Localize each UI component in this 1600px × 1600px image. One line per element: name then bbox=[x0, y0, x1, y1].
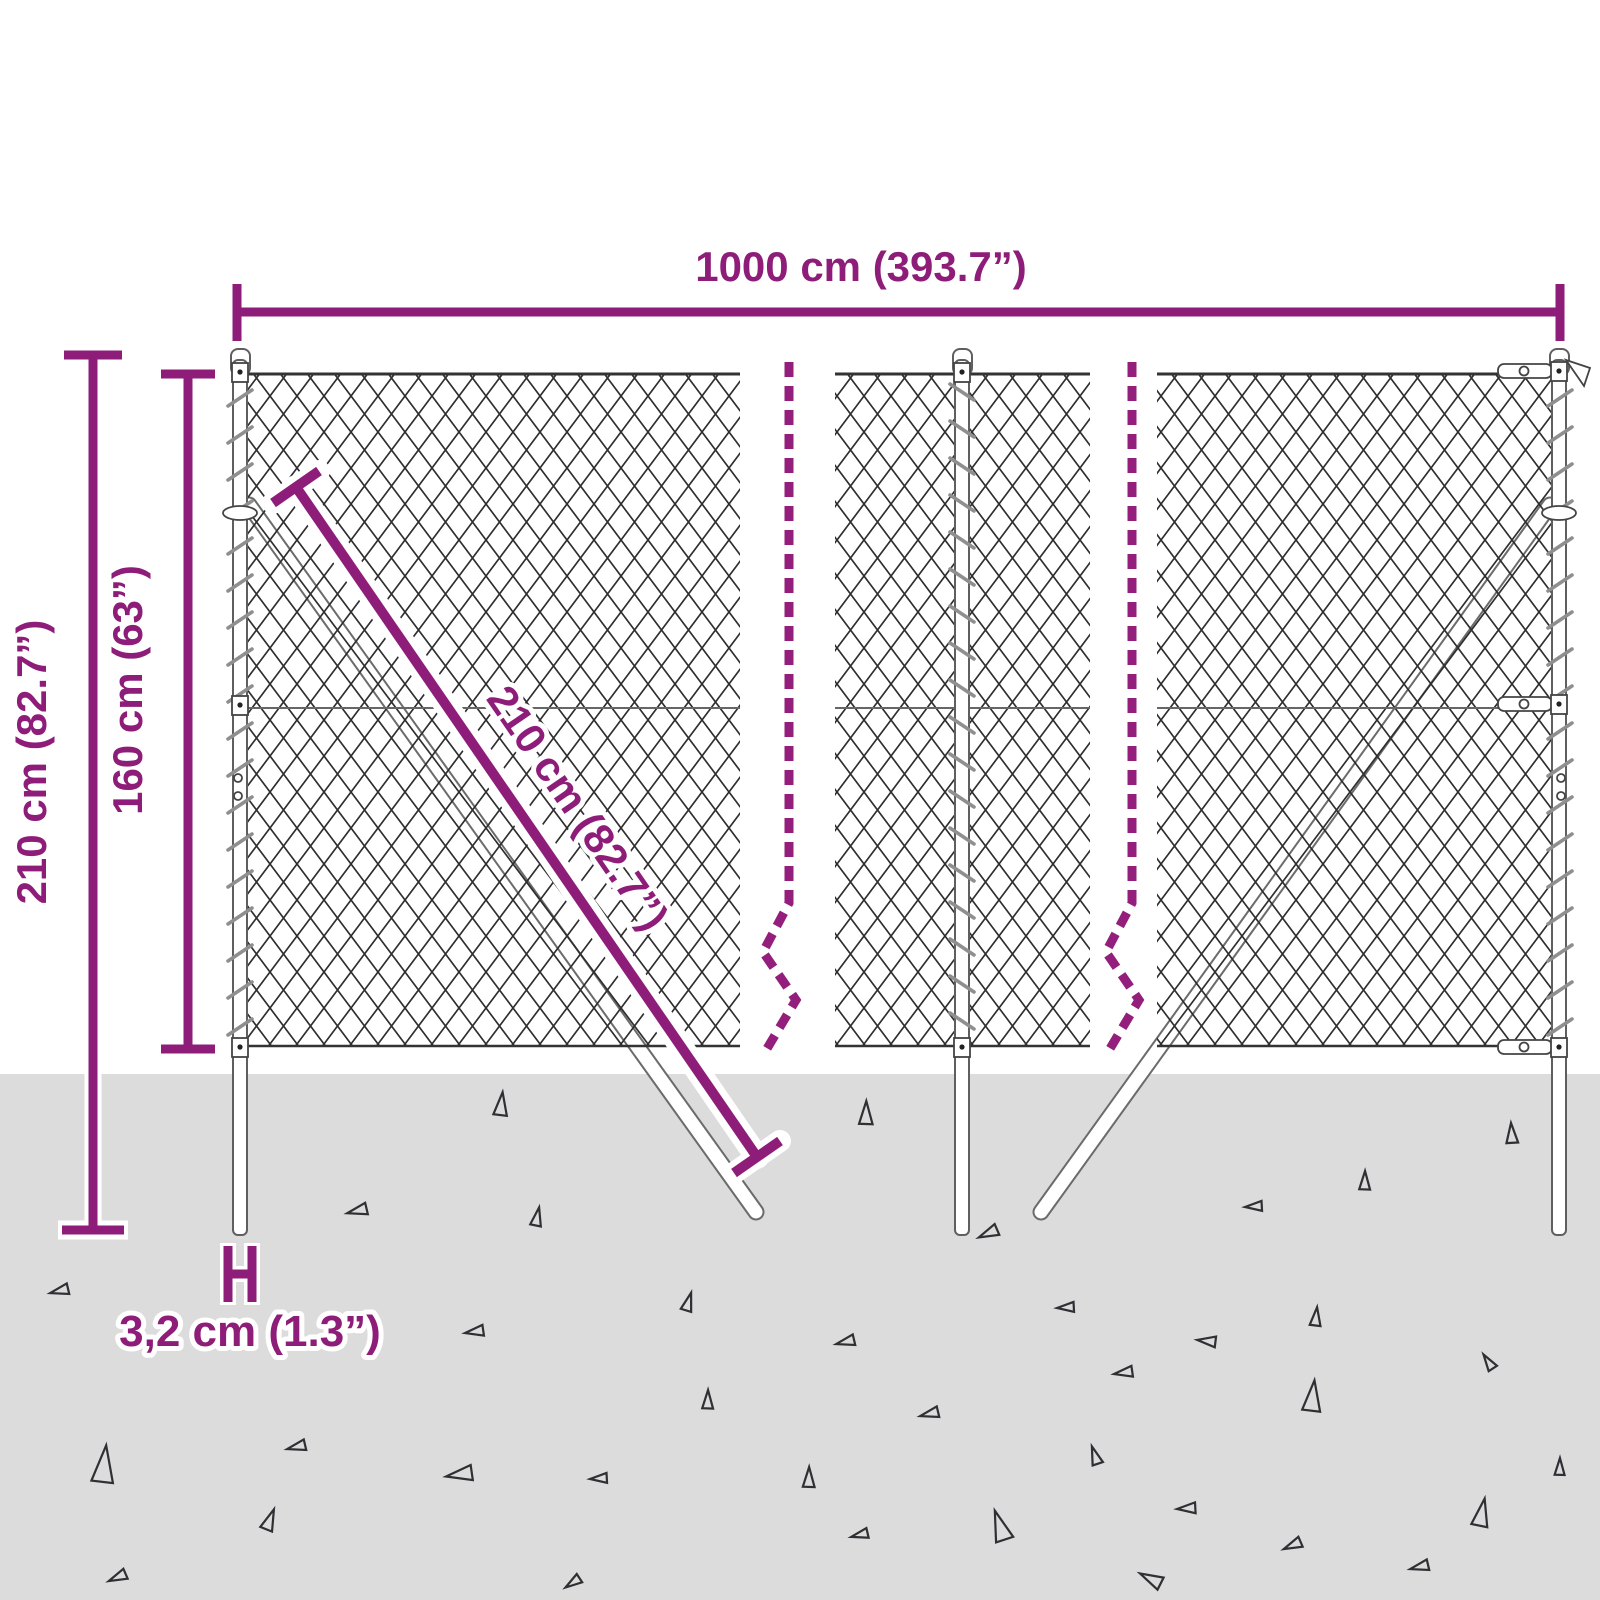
fence-dimension-diagram: 1000 cm (393.7”) 210 cm (82.7”) 160 cm (… bbox=[0, 0, 1600, 1600]
left-post-hole-1 bbox=[234, 774, 242, 782]
right-corner-fitting bbox=[1566, 360, 1590, 386]
right-post-clamp bbox=[1542, 506, 1576, 520]
label-post-diameter: 3,2 cm (1.3”) bbox=[119, 1307, 381, 1356]
label-total-height: 210 cm (82.7”) bbox=[8, 620, 55, 905]
label-mesh-height: 160 cm (63”) bbox=[104, 565, 151, 815]
mesh-3 bbox=[1157, 373, 1552, 1047]
dimension-mesh-height: 160 cm (63”) bbox=[104, 374, 215, 1049]
left-post-hole-2 bbox=[234, 792, 242, 800]
break-dashed-line-2 bbox=[1106, 362, 1139, 1052]
label-total-width: 1000 cm (393.7”) bbox=[695, 243, 1027, 290]
right-post-hole-1 bbox=[1557, 774, 1565, 782]
left-post-clamp bbox=[223, 506, 257, 520]
right-post-hole-2 bbox=[1557, 792, 1565, 800]
break-dashed-line-1 bbox=[763, 362, 796, 1052]
diagram-canvas: 1000 cm (393.7”) 210 cm (82.7”) 160 cm (… bbox=[0, 0, 1600, 1600]
dimension-total-width: 1000 cm (393.7”) bbox=[237, 243, 1560, 341]
